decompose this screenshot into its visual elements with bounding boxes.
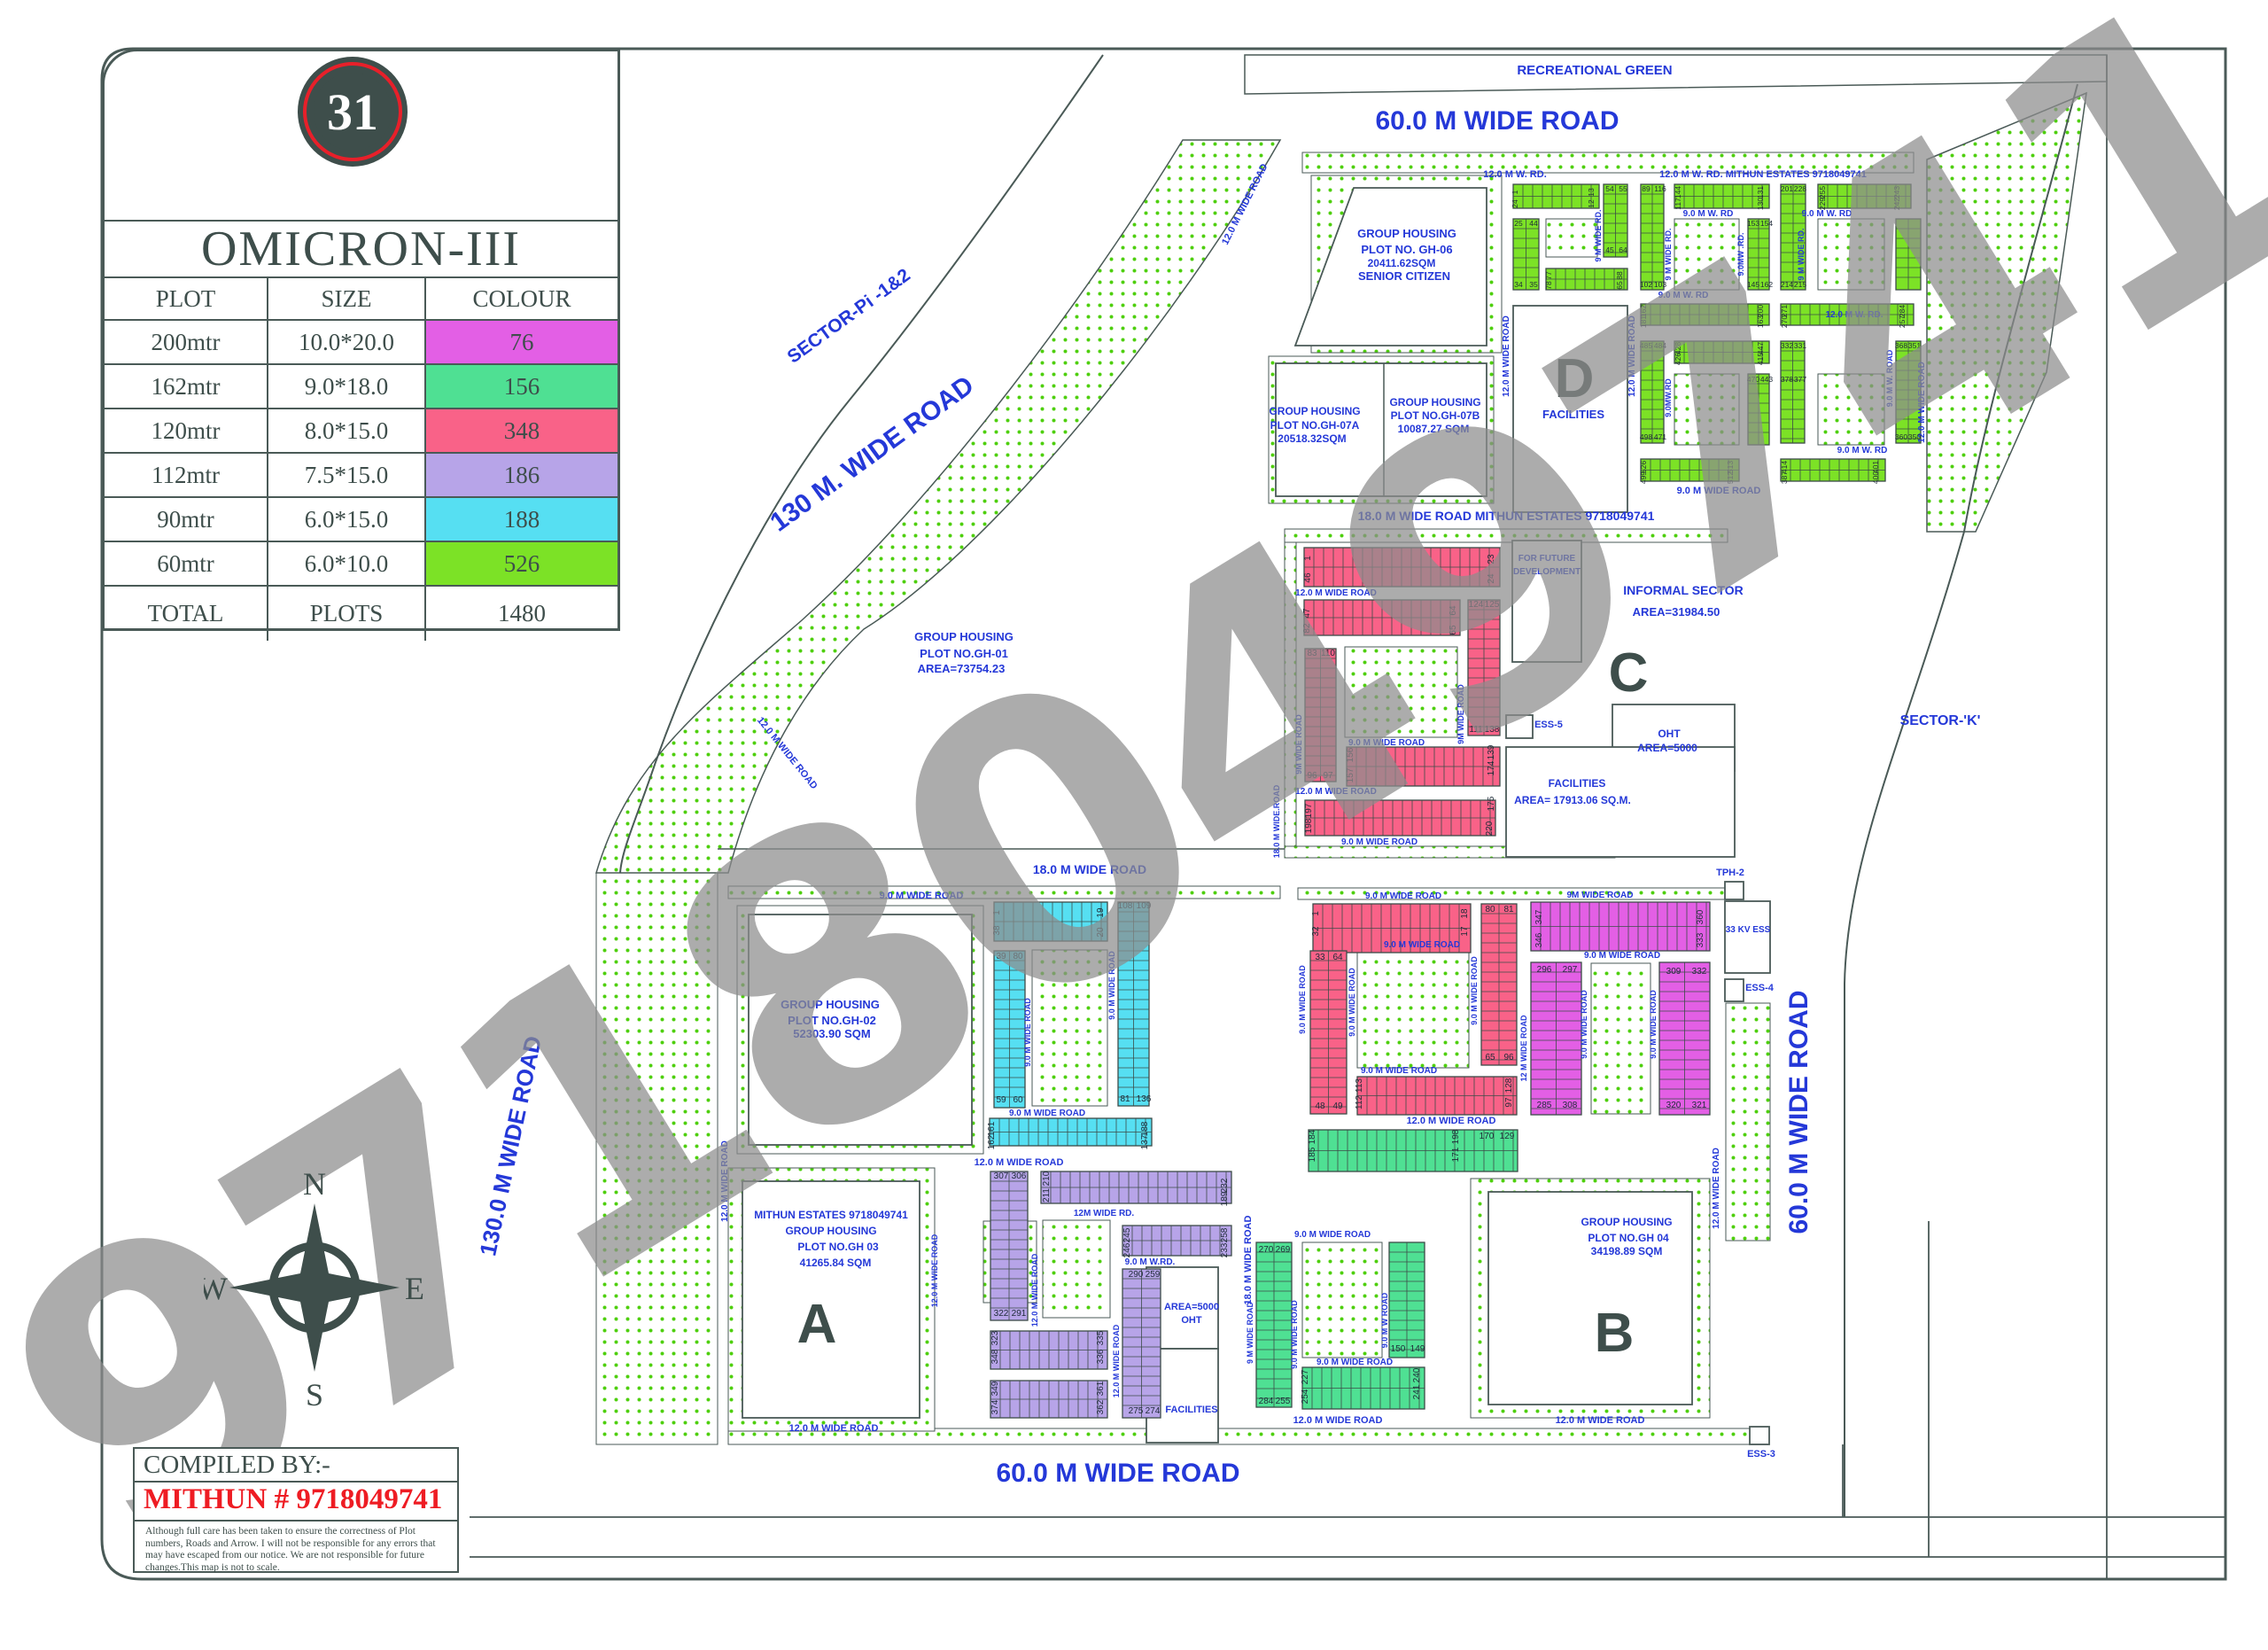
road-label: 60.0 M WIDE ROAD xyxy=(1375,106,1619,136)
plot-type: 200mtr xyxy=(105,321,268,363)
plot-number: 1 xyxy=(992,910,1002,915)
block-letter: A xyxy=(797,1294,837,1355)
plot-number: 197 xyxy=(1304,803,1314,818)
road-label: 12.0 M WIDE ROAD xyxy=(1917,362,1927,443)
plot-number: 258 xyxy=(1220,1227,1230,1242)
plot-number: 1 xyxy=(1303,556,1313,561)
plot-number: 64 xyxy=(1619,245,1627,254)
road-label: 60.0 M WIDE ROAD xyxy=(1784,990,1814,1234)
road-label: 9.0MW.RD xyxy=(1664,378,1673,417)
plot-number: 44 xyxy=(1529,219,1538,228)
plot-number: 88 xyxy=(1615,271,1624,280)
plot-number: 111 xyxy=(1469,725,1483,735)
road-label: 9M WIDE ROAD xyxy=(1567,891,1634,900)
road-label: AREA=5000 xyxy=(1164,1302,1219,1312)
plot-number: 81 xyxy=(1120,1094,1130,1104)
road-label: 9 M WIDE RD. xyxy=(1664,228,1673,280)
plot-number: 201 xyxy=(1781,184,1793,193)
road-label: 12M WIDE RD. xyxy=(1074,1209,1135,1218)
road-label: 33 KV ESS xyxy=(1726,925,1771,935)
road-label: 9.0 M WIDE ROAD xyxy=(1107,951,1116,1020)
road-label: 9.0 M WIDE ROAD xyxy=(1384,940,1460,950)
plot-number: 162 xyxy=(1760,280,1773,289)
road-label: 20411.62SQM xyxy=(1368,257,1436,269)
plot-number: 240 xyxy=(1412,1367,1422,1382)
road-label: ESS-3 xyxy=(1747,1449,1775,1459)
plot-number: 81 xyxy=(1503,905,1514,915)
plot-number: 97 xyxy=(1323,771,1333,781)
plot-number: 83 xyxy=(1307,649,1317,658)
plot-number: 96 xyxy=(1503,1053,1514,1062)
plot-number: 415 xyxy=(1756,353,1765,365)
plot-number: 321 xyxy=(1692,1101,1707,1110)
road-label: 9.0 M W. RD xyxy=(1802,209,1852,219)
plot-number: 125 xyxy=(1485,600,1500,610)
plot-number: 296 xyxy=(1537,965,1552,975)
plot-number: 323 xyxy=(990,1330,1000,1345)
legend-row-162: 162mtr 9.0*18.0 156 xyxy=(105,365,617,409)
road-label: 12.0 M WIDE ROAD xyxy=(975,1157,1064,1168)
plot-number: 181 xyxy=(1639,315,1648,328)
map-area xyxy=(596,140,1280,873)
road-label: 9.0 M WIDE ROAD xyxy=(1341,837,1417,847)
plot-number: 275 xyxy=(1129,1406,1144,1416)
greenery-dotted-area xyxy=(1285,542,1296,857)
road-label: 12.0 M W. RD. xyxy=(1483,169,1547,180)
plot-number: 471 xyxy=(1654,432,1666,441)
road-label: 12.0 M WIDE ROAD xyxy=(789,1423,879,1434)
road-label: 9M WIDE ROAD xyxy=(1456,684,1465,744)
plot-number: 82 xyxy=(1302,623,1312,634)
block-letter: D xyxy=(1555,348,1595,409)
plot-number: 332 xyxy=(1692,967,1707,977)
plot-number: 368 xyxy=(1895,341,1907,350)
plot-number: 162 xyxy=(987,1134,997,1149)
plot-number: 38 xyxy=(992,925,1002,936)
plot-count-swatch: 156 xyxy=(426,365,617,408)
road-label: 12.0 M W. RD. MITHUN ESTATES 9718049741 xyxy=(1659,169,1867,180)
plot-number: 306 xyxy=(1012,1171,1027,1181)
plot-number: 188 xyxy=(1140,1121,1150,1136)
road-label: 9.0 M WIDE ROAD xyxy=(1294,1230,1371,1240)
road-label: 9.0 M WIDE ROAD xyxy=(1677,486,1761,496)
legend-logo-row: 31 xyxy=(105,51,617,222)
plot-number: 112 xyxy=(1355,1095,1364,1109)
plot-number: 211 xyxy=(1042,1188,1052,1202)
road-label: RECREATIONAL GREEN xyxy=(1517,63,1672,78)
facility-box xyxy=(1750,1427,1769,1444)
road-label: 12.0 M WIDE ROAD xyxy=(1295,588,1377,598)
plot-number: 322 xyxy=(994,1309,1009,1319)
plot-type: 162mtr xyxy=(105,365,268,408)
road-label: 9M WIDE ROAD xyxy=(1294,714,1303,774)
road-label: 41265.84 SQM xyxy=(800,1257,872,1269)
plot-number: 198 xyxy=(1304,818,1314,833)
plot-number: 285 xyxy=(1537,1101,1552,1110)
greenery-dotted-area xyxy=(1302,1242,1382,1358)
map-area xyxy=(1245,55,2107,94)
legend-panel: 31 OMICRON-III PLOT SIZE COLOUR 200mtr 1… xyxy=(102,49,620,631)
compass-south-label: S xyxy=(306,1377,323,1409)
plot-number: 307 xyxy=(994,1171,1009,1181)
plot-number: 350 xyxy=(1908,432,1921,441)
plot-number: 131 xyxy=(1756,186,1765,198)
plot-number: 1 xyxy=(1311,911,1321,916)
road-label: GROUP HOUSING xyxy=(1581,1216,1672,1228)
road-label: PLOT NO.GH-02 xyxy=(788,1014,876,1027)
plot-size: 6.0*10.0 xyxy=(268,542,426,585)
road-label: SECTOR-'K' xyxy=(1900,713,1981,728)
plot-number: 144 xyxy=(1674,186,1682,198)
road-label: 12.0 M WIDE ROAD xyxy=(1112,1324,1121,1397)
block-letter: B xyxy=(1595,1303,1635,1364)
road-label: OHT xyxy=(1181,1315,1202,1326)
road-label: PLOT NO.GH-07B xyxy=(1391,409,1480,422)
plot-number: 47 xyxy=(1302,608,1312,619)
plot-number: 246 xyxy=(1122,1242,1132,1257)
plot-number: 360 xyxy=(1696,909,1705,924)
plot-number: 257 xyxy=(1898,315,1907,328)
legend-row-112: 112mtr 7.5*15.0 186 xyxy=(105,454,617,498)
plot-number: 291 xyxy=(1012,1309,1027,1319)
road-label: SECTOR-Pi -1&2 xyxy=(784,265,914,368)
plot-size: 7.5*15.0 xyxy=(268,454,426,496)
plot-number: 13 xyxy=(1587,188,1596,197)
plot-number: 485 xyxy=(1640,341,1652,350)
plot-number: 220 xyxy=(1485,821,1495,836)
plot-number: 470 xyxy=(1747,375,1759,384)
road-label: AREA=73754.23 xyxy=(918,662,1006,675)
legend-row-120: 120mtr 8.0*15.0 348 xyxy=(105,409,617,454)
road-label: 9.0 M W. RD xyxy=(1683,209,1734,219)
plot-number: 498 xyxy=(1640,432,1652,441)
greenery-dotted-area xyxy=(1818,219,1884,290)
plot-number: 512 xyxy=(1726,471,1735,484)
plot-number: 232 xyxy=(1220,1178,1230,1193)
plot-number: 39 xyxy=(996,952,1006,961)
plot-number: 290 xyxy=(1129,1270,1144,1280)
plot-number: 65 xyxy=(1485,1053,1495,1062)
plot-size: 8.0*15.0 xyxy=(268,409,426,452)
legend-header-size: SIZE xyxy=(268,278,426,319)
plot-number: 65 xyxy=(1449,625,1458,635)
road-label: 12.0 M WIDE ROAD xyxy=(1502,315,1511,397)
legend-header-colour: COLOUR xyxy=(426,278,617,319)
road-label: GROUP HOUSING xyxy=(914,630,1014,643)
road-label: 12.0 M WIDE ROAD xyxy=(1295,787,1377,797)
legend-header-row: PLOT SIZE COLOUR xyxy=(105,278,617,321)
road-label: FACILITIES xyxy=(1549,777,1606,790)
road-label: 9.0 M WIDE ROAD xyxy=(1348,968,1356,1037)
plot-number: 259 xyxy=(1146,1270,1161,1280)
total-plots-label: PLOTS xyxy=(268,587,426,641)
block-letter: C xyxy=(1609,642,1649,704)
map-area xyxy=(1927,93,2086,532)
road-label: 12 M WIDE ROAD xyxy=(1519,1015,1528,1082)
plot-number: 138 xyxy=(1485,725,1500,735)
road-label: GROUP HOUSING xyxy=(785,1225,876,1237)
compass-north-label: N xyxy=(303,1166,326,1202)
road-label: PLOT NO.GH-01 xyxy=(920,647,1008,660)
road-label: INFORMAL SECTOR xyxy=(1623,583,1744,597)
road-label: 18.0 M WIDE ROAD MITHUN ESTATES 97180497… xyxy=(1358,509,1655,523)
plot-number: 149 xyxy=(1410,1344,1425,1354)
plot-number: 348 xyxy=(990,1349,1000,1364)
plot-type: 90mtr xyxy=(105,498,268,541)
road-label: 60.0 M WIDE ROAD xyxy=(996,1459,1239,1488)
road-label: GROUP HOUSING xyxy=(1269,405,1360,417)
road-label: 20518.32SQM xyxy=(1278,432,1346,445)
plot-number: 270 xyxy=(1780,315,1789,328)
plot-number: 136 xyxy=(1137,1094,1152,1104)
plot-number: 110 xyxy=(1321,649,1335,658)
plot-number: 333 xyxy=(1696,932,1705,947)
plot-number: 48 xyxy=(1315,1101,1325,1111)
plot-number: 33 xyxy=(1315,953,1325,962)
plot-number: 254 xyxy=(1301,1389,1310,1404)
plot-number: 499 xyxy=(1639,471,1648,484)
compiled-by-heading: COMPILED BY:- xyxy=(135,1449,457,1483)
plot-number: 24 xyxy=(1487,573,1496,584)
road-label: 9.0 M WIDE ROAD xyxy=(1023,998,1032,1067)
plot-number: 145 xyxy=(1747,280,1759,289)
plot-number: 349 xyxy=(990,1381,1000,1396)
road-label: GROUP HOUSING xyxy=(1389,396,1480,409)
badge-red-ring: 31 xyxy=(303,62,402,161)
road-label: FACILITIES xyxy=(1542,408,1604,421)
facility-box xyxy=(1506,715,1533,738)
road-label: 12.0 M WIDE ROAD xyxy=(720,1140,730,1222)
legend-row-90: 90mtr 6.0*15.0 188 xyxy=(105,498,617,542)
plot-number: 484 xyxy=(1654,341,1666,350)
plot-number: 17 xyxy=(1460,926,1470,937)
plot-size: 10.0*20.0 xyxy=(268,321,426,363)
plot-number: 308 xyxy=(1563,1101,1578,1110)
road-label: 9 M WIDE RD. xyxy=(1797,228,1806,280)
greenery-dotted-area xyxy=(1591,963,1651,1114)
plot-number: 297 xyxy=(1563,965,1578,975)
plot-number: 19 xyxy=(1096,907,1106,918)
plot-number: 109 xyxy=(1137,901,1152,911)
plot-number: 331 xyxy=(1794,341,1806,350)
plot-number: 153 xyxy=(1747,219,1759,228)
greenery-dotted-area xyxy=(1043,1220,1110,1318)
road-label: GROUP HOUSING xyxy=(1357,227,1456,240)
road-label: 9 M WIDE ROAD xyxy=(1246,1302,1254,1365)
facility-box xyxy=(1725,882,1744,899)
plot-number: 60 xyxy=(1013,1095,1023,1105)
plot-number: 242 xyxy=(1892,198,1901,210)
legend-row-200: 200mtr 10.0*20.0 76 xyxy=(105,321,617,365)
plot-number: 170 xyxy=(1480,1132,1495,1141)
plot-number: 362 xyxy=(1096,1399,1106,1414)
road-label: 130.0 M WIDE ROAD xyxy=(474,1033,547,1258)
legend-row-60: 60mtr 6.0*10.0 526 xyxy=(105,542,617,587)
compiled-by-box: COMPILED BY:- MITHUN # 9718049741 Althou… xyxy=(133,1447,459,1573)
plot-number: 171 xyxy=(1451,1147,1461,1162)
plot-number: 96 xyxy=(1307,771,1317,781)
greenery-dotted-area xyxy=(1818,374,1884,445)
plot-number: 137 xyxy=(1140,1134,1150,1149)
plot-number: 320 xyxy=(1666,1101,1682,1110)
plot-number: 103 xyxy=(1654,280,1666,289)
road-label: 12.0 M WIDE ROAD xyxy=(1556,1415,1645,1426)
road-label: 9.0 M WIDE ROAD xyxy=(1290,1300,1299,1369)
road-label: 9.0 M WIDE ROAD xyxy=(1584,951,1660,961)
plot-number: 46 xyxy=(1303,572,1313,583)
greenery-dotted-area xyxy=(1345,647,1457,737)
road-label: PLOT NO.GH 03 xyxy=(797,1241,879,1253)
sector-map-sheet: { "legend": { "badge": "31", "title": "O… xyxy=(0,0,2268,1603)
plot-number: 378 xyxy=(1781,375,1793,384)
plot-number: 54 xyxy=(1605,184,1614,193)
road-label: 9.0 M WIDE ROAD xyxy=(1365,891,1441,901)
plot-number: 210 xyxy=(1042,1171,1052,1186)
plot-number: 387 xyxy=(1780,471,1789,484)
plot-count-swatch: 188 xyxy=(426,498,617,541)
plot-number: 154 xyxy=(1760,219,1773,228)
road-label: 18.0 M WIDE ROAD xyxy=(1033,862,1146,876)
plot-count-swatch: 186 xyxy=(426,454,617,496)
badge-number: 31 xyxy=(314,73,392,151)
road-label: DEVELOPMENT xyxy=(1513,567,1581,577)
plot-number: 77 xyxy=(1544,271,1553,280)
plot-size: 6.0*15.0 xyxy=(268,498,426,541)
plot-number: 335 xyxy=(1096,1330,1106,1345)
plot-number: 130 xyxy=(1756,198,1765,210)
plot-type: 60mtr xyxy=(105,542,268,585)
plot-number: 34 xyxy=(1514,280,1523,289)
plot-number: 49 xyxy=(1332,1101,1343,1111)
compass-rose-icon: N S W E xyxy=(204,1161,425,1409)
plot-number: 269 xyxy=(1276,1245,1291,1255)
greenery-dotted-area xyxy=(1298,888,1725,899)
road-label: 34198.89 SQM xyxy=(1591,1245,1663,1257)
plot-number: 175 xyxy=(1487,796,1496,811)
plot-size: 9.0*18.0 xyxy=(268,365,426,408)
road-label: 12.0 M WIDE ROAD xyxy=(1712,1148,1721,1229)
road-label: GROUP HOUSING xyxy=(781,998,880,1011)
plot-number: 198 xyxy=(1451,1129,1461,1144)
road-label: AREA= 17913.06 SQ.M. xyxy=(1514,794,1631,806)
legend-header-plot: PLOT xyxy=(105,278,268,319)
plot-number: 78 xyxy=(1544,281,1553,290)
compass-star xyxy=(229,1203,400,1372)
plot-number: 116 xyxy=(1654,184,1666,193)
road-label: 9.0 M W.RD. xyxy=(1125,1257,1176,1267)
road-label: 9.0 M WIDE ROAD xyxy=(1470,956,1479,1025)
plot-number: 35 xyxy=(1529,280,1538,289)
greenery-dotted-area xyxy=(1726,1003,1770,1241)
road-label: 9.0 M WIDE ROAD xyxy=(1317,1358,1393,1367)
plot-number: 23 xyxy=(1487,554,1496,564)
plot-number: 20 xyxy=(1096,927,1106,938)
plot-number: 189 xyxy=(1220,1191,1230,1206)
plot-number: 117 xyxy=(1674,198,1682,210)
plot-number: 59 xyxy=(996,1095,1006,1105)
road-label: 12.0 M WIDE ROAD xyxy=(1627,315,1637,397)
road-label: 9.0 M W. RD xyxy=(1658,291,1709,300)
plot-number: 255 xyxy=(1276,1397,1291,1406)
road-label: 9.0MW .RD. xyxy=(1736,232,1745,276)
total-count: 1480 xyxy=(426,587,617,641)
greenery-dotted-area xyxy=(1285,529,1728,542)
plot-number: 124 xyxy=(1469,600,1484,610)
total-label: TOTAL xyxy=(105,587,268,641)
plot-number: 129 xyxy=(1500,1132,1515,1141)
plot-number: 1 xyxy=(1511,190,1519,194)
greenery-dotted-area xyxy=(728,886,1280,899)
plot-number: 346 xyxy=(1534,932,1544,947)
plot-number: 245 xyxy=(1122,1227,1132,1242)
plot-number: 360 xyxy=(1895,432,1907,441)
facility-box xyxy=(1725,901,1770,973)
plot-number: 80 xyxy=(1013,952,1023,961)
plot-count-swatch: 348 xyxy=(426,409,617,452)
road-label: 12.0 M W. RD. xyxy=(1825,310,1883,320)
road-label: 18.0 M WIDE ROAD xyxy=(1243,1216,1254,1305)
plot-number: 108 xyxy=(1118,901,1133,911)
plot-number: 336 xyxy=(1096,1349,1106,1364)
road-label: 12.0 M WIDE ROAD xyxy=(1030,1253,1039,1327)
compiler-name-phone: MITHUN # 9718049741 xyxy=(135,1483,457,1522)
compass-west-label: W xyxy=(204,1271,228,1306)
plot-number: 97 xyxy=(1504,1097,1514,1108)
plot-number: 400 xyxy=(1871,471,1880,484)
road-label: AREA=5000 xyxy=(1637,742,1697,754)
greenery-dotted-area xyxy=(1546,219,1597,257)
road-label: 12.0 M WIDE ROAD xyxy=(930,1234,939,1307)
plot-number: 65 xyxy=(1615,281,1624,290)
plot-number: 351 xyxy=(1908,341,1921,350)
plot-number: 215 xyxy=(1794,280,1806,289)
road-label: 9.0 M W. RD xyxy=(1837,446,1888,455)
road-label: AREA=31984.50 xyxy=(1633,605,1720,619)
plot-number: 113 xyxy=(1355,1078,1364,1093)
plot-number: 284 xyxy=(1259,1397,1274,1406)
plot-count-swatch: 76 xyxy=(426,321,617,363)
plot-number: 255 xyxy=(1818,186,1827,198)
plot-number: 24 xyxy=(1511,199,1519,208)
road-label: FACILITIES xyxy=(1165,1405,1217,1415)
road-label: 18.0 M WIDE.ROAD xyxy=(1272,784,1281,858)
compass-east-label: E xyxy=(405,1271,424,1306)
road-label: 9.0 M WIDE ROAD xyxy=(1580,990,1588,1059)
plot-number: 377 xyxy=(1794,375,1806,384)
plot-number: 150 xyxy=(1391,1344,1406,1354)
greenery-dotted-area xyxy=(596,873,718,1444)
plot-number: 233 xyxy=(1220,1242,1230,1257)
greenery-dotted-area xyxy=(1674,219,1739,290)
plot-number: 184 xyxy=(1308,1129,1317,1144)
plot-number: 227 xyxy=(1301,1369,1310,1384)
road-label: 9.0 M WIDE ROAD xyxy=(1298,965,1307,1034)
road-label: PLOT NO.GH 04 xyxy=(1588,1232,1669,1244)
road-label: 9.0 M WIDE ROAD xyxy=(880,891,964,901)
plot-number: 139 xyxy=(1487,744,1496,759)
road-label: PLOT NO.GH-07A xyxy=(1270,419,1360,432)
road-label: 52303.90 SQM xyxy=(793,1027,870,1040)
road-label: 9.0 M WIDE ROAD xyxy=(1009,1109,1085,1118)
road-label: 9.0 M WIDE ROAD xyxy=(1348,738,1425,748)
plot-number: 128 xyxy=(1504,1078,1514,1093)
road-label: 9 M WIDE RD. xyxy=(1594,209,1603,261)
plot-number: 25 xyxy=(1514,219,1523,228)
road-label: 12.0 M WIDE ROAD xyxy=(1407,1116,1496,1126)
disclaimer-text: Although full care has been taken to ens… xyxy=(135,1522,457,1578)
plot-number: 18 xyxy=(1460,908,1470,919)
road-label: OHT xyxy=(1658,728,1681,740)
